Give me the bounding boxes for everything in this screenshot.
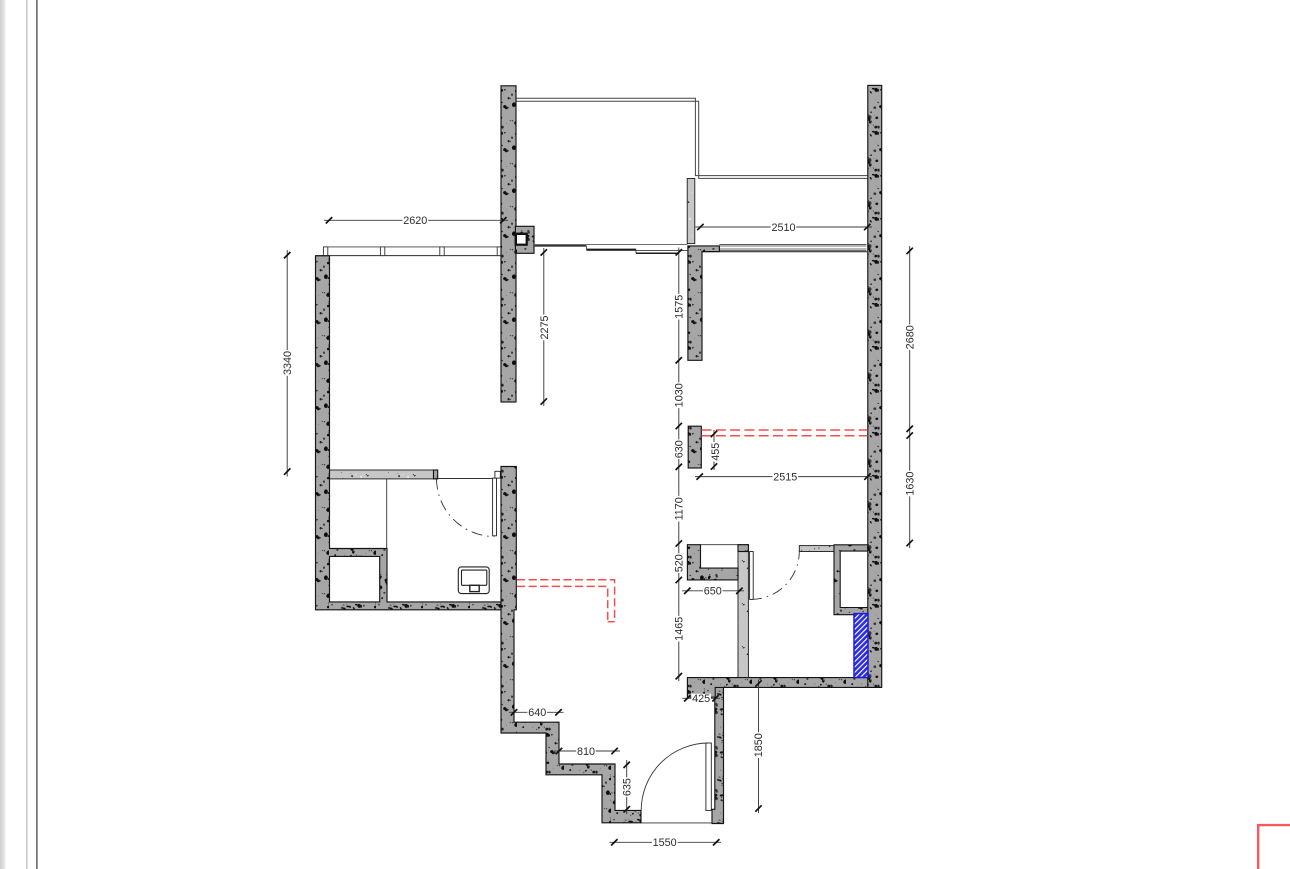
svg-text:1850: 1850 bbox=[753, 733, 765, 757]
svg-text:1630: 1630 bbox=[905, 472, 917, 496]
svg-text:2620: 2620 bbox=[403, 215, 427, 227]
svg-text:520: 520 bbox=[674, 554, 686, 572]
svg-text:455: 455 bbox=[710, 443, 722, 461]
svg-text:1575: 1575 bbox=[674, 295, 686, 319]
svg-text:630: 630 bbox=[674, 440, 686, 458]
svg-text:2680: 2680 bbox=[905, 325, 917, 349]
svg-text:810: 810 bbox=[577, 746, 595, 758]
svg-text:650: 650 bbox=[704, 586, 722, 598]
svg-text:1170: 1170 bbox=[674, 497, 686, 520]
svg-text:1465: 1465 bbox=[674, 617, 686, 641]
svg-text:2510: 2510 bbox=[771, 222, 795, 234]
svg-text:425: 425 bbox=[692, 693, 710, 705]
svg-text:3340: 3340 bbox=[282, 351, 294, 375]
svg-text:1550: 1550 bbox=[653, 837, 677, 849]
svg-text:2275: 2275 bbox=[539, 315, 551, 339]
svg-text:2515: 2515 bbox=[773, 472, 797, 484]
svg-text:640: 640 bbox=[528, 707, 546, 719]
svg-text:1030: 1030 bbox=[674, 383, 686, 407]
svg-text:635: 635 bbox=[622, 778, 634, 796]
